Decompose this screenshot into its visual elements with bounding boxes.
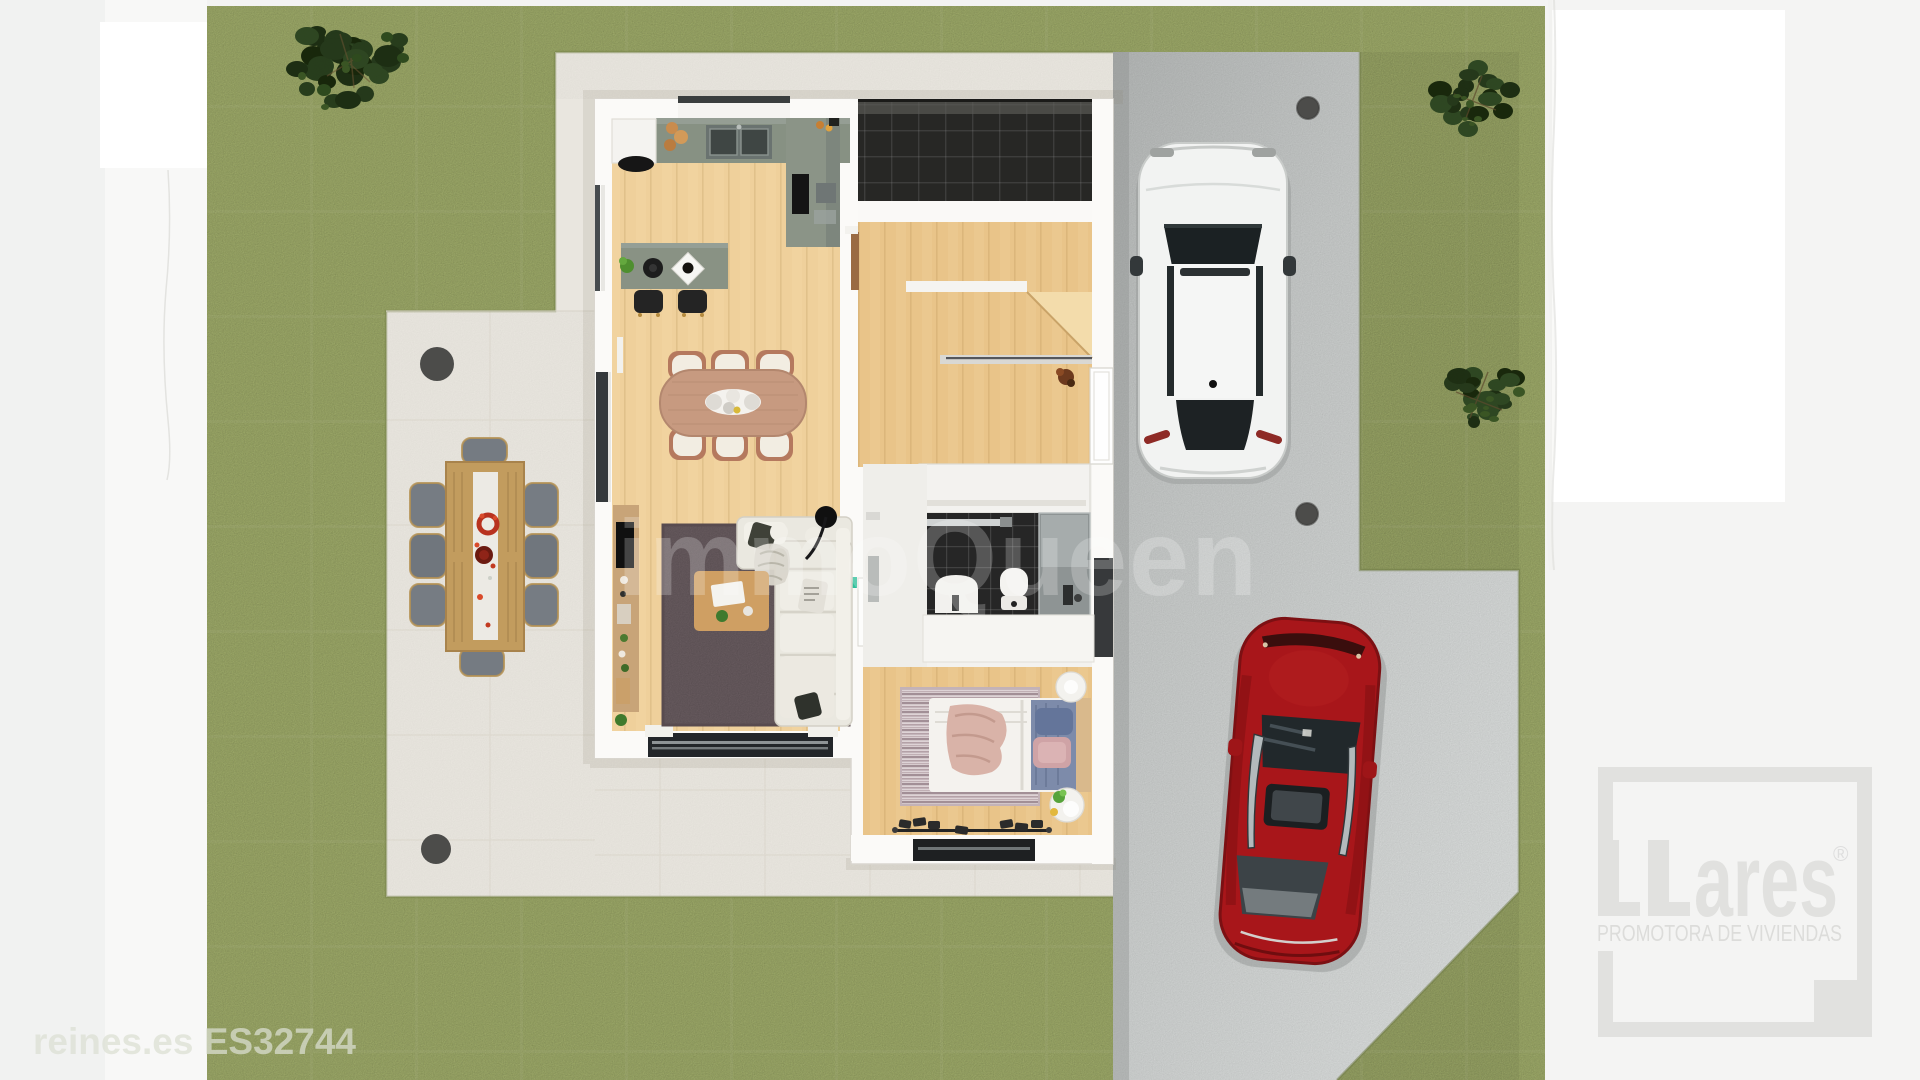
svg-text:reines.es ES32744: reines.es ES32744 [33,1021,356,1062]
svg-text:immoQueen: immoQueen [617,497,1259,618]
svg-text:PROMOTORA DE VIVIENDAS: PROMOTORA DE VIVIENDAS [1597,920,1842,946]
svg-text:®: ® [1833,843,1849,866]
